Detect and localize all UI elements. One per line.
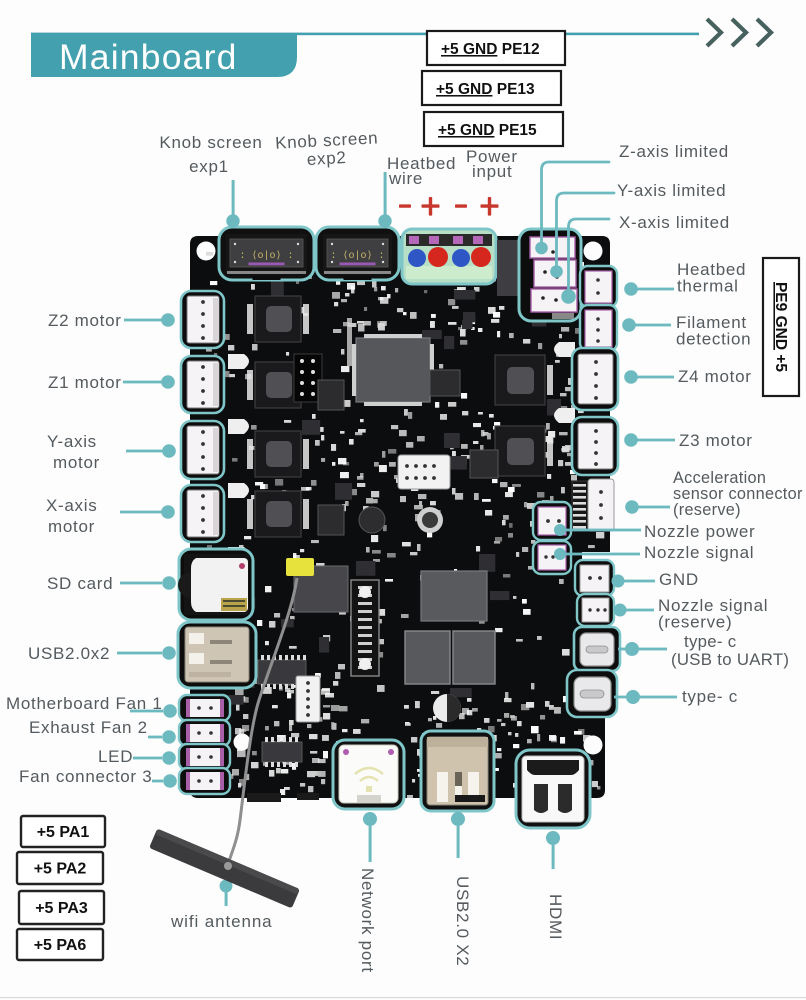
svg-text:(reserve): (reserve) xyxy=(673,501,741,519)
svg-text:X-axis limited: X-axis limited xyxy=(619,213,730,232)
svg-text:USB2.0 X2: USB2.0 X2 xyxy=(453,876,472,966)
svg-text:: ⟨o|o⟩ :: : ⟨o|o⟩ : xyxy=(239,250,293,262)
svg-text:Z4 motor: Z4 motor xyxy=(678,367,752,386)
svg-text:motor: motor xyxy=(48,517,95,536)
svg-text:+5 PA3: +5 PA3 xyxy=(35,900,88,917)
svg-text:input: input xyxy=(472,162,512,181)
svg-text:X-axis: X-axis xyxy=(46,496,97,515)
svg-text:type- c: type- c xyxy=(682,687,738,706)
svg-text:Fan connector 3: Fan connector 3 xyxy=(19,767,152,786)
svg-text:(reserve): (reserve) xyxy=(658,613,732,632)
svg-text:wire: wire xyxy=(388,169,423,188)
svg-text:(USB to UART): (USB to UART) xyxy=(671,650,789,669)
svg-text:Nozzle signal: Nozzle signal xyxy=(644,543,754,562)
svg-text:Y-axis limited: Y-axis limited xyxy=(617,181,726,200)
svg-text:+5 PA6: +5 PA6 xyxy=(34,937,87,954)
svg-text:Exhaust Fan 2: Exhaust Fan 2 xyxy=(29,718,148,737)
svg-text:motor: motor xyxy=(53,453,100,472)
svg-text:detection: detection xyxy=(676,330,751,349)
svg-text:type- c: type- c xyxy=(684,632,736,651)
svg-text:Z1 motor: Z1 motor xyxy=(48,373,122,392)
svg-text:Network port: Network port xyxy=(358,868,377,973)
svg-text:exp2: exp2 xyxy=(306,148,347,169)
svg-text:USB2.0x2: USB2.0x2 xyxy=(28,644,110,663)
svg-text:exp1: exp1 xyxy=(189,157,229,176)
svg-text:Nozzle power: Nozzle power xyxy=(644,522,755,541)
svg-text:: ⟨o|o⟩ :: : ⟨o|o⟩ : xyxy=(330,250,384,262)
svg-text:Z2 motor: Z2 motor xyxy=(48,311,122,330)
svg-text:Knob screen: Knob screen xyxy=(159,133,262,152)
svg-text:+5 GND PE12: +5 GND PE12 xyxy=(441,41,540,58)
svg-text:Z-axis limited: Z-axis limited xyxy=(619,142,729,161)
svg-text:+5 GND PE13: +5 GND PE13 xyxy=(436,81,535,98)
svg-text:Y-axis: Y-axis xyxy=(47,432,97,451)
svg-text:Mainboard: Mainboard xyxy=(59,37,238,77)
svg-text:wifi antenna: wifi antenna xyxy=(170,912,273,931)
svg-text:Z3 motor: Z3 motor xyxy=(679,431,753,450)
svg-text:SD card: SD card xyxy=(47,574,113,593)
svg-text:GND: GND xyxy=(659,570,699,589)
svg-text:HDMI: HDMI xyxy=(546,894,565,940)
svg-text:+5 PA2: +5 PA2 xyxy=(34,861,87,878)
svg-text:LED: LED xyxy=(98,747,133,766)
svg-text:PE9 GND +5: PE9 GND +5 xyxy=(772,282,789,372)
svg-text:+5 GND PE15: +5 GND PE15 xyxy=(438,122,537,139)
svg-text:+5 PA1: +5 PA1 xyxy=(37,824,90,841)
svg-text:thermal: thermal xyxy=(677,277,739,296)
